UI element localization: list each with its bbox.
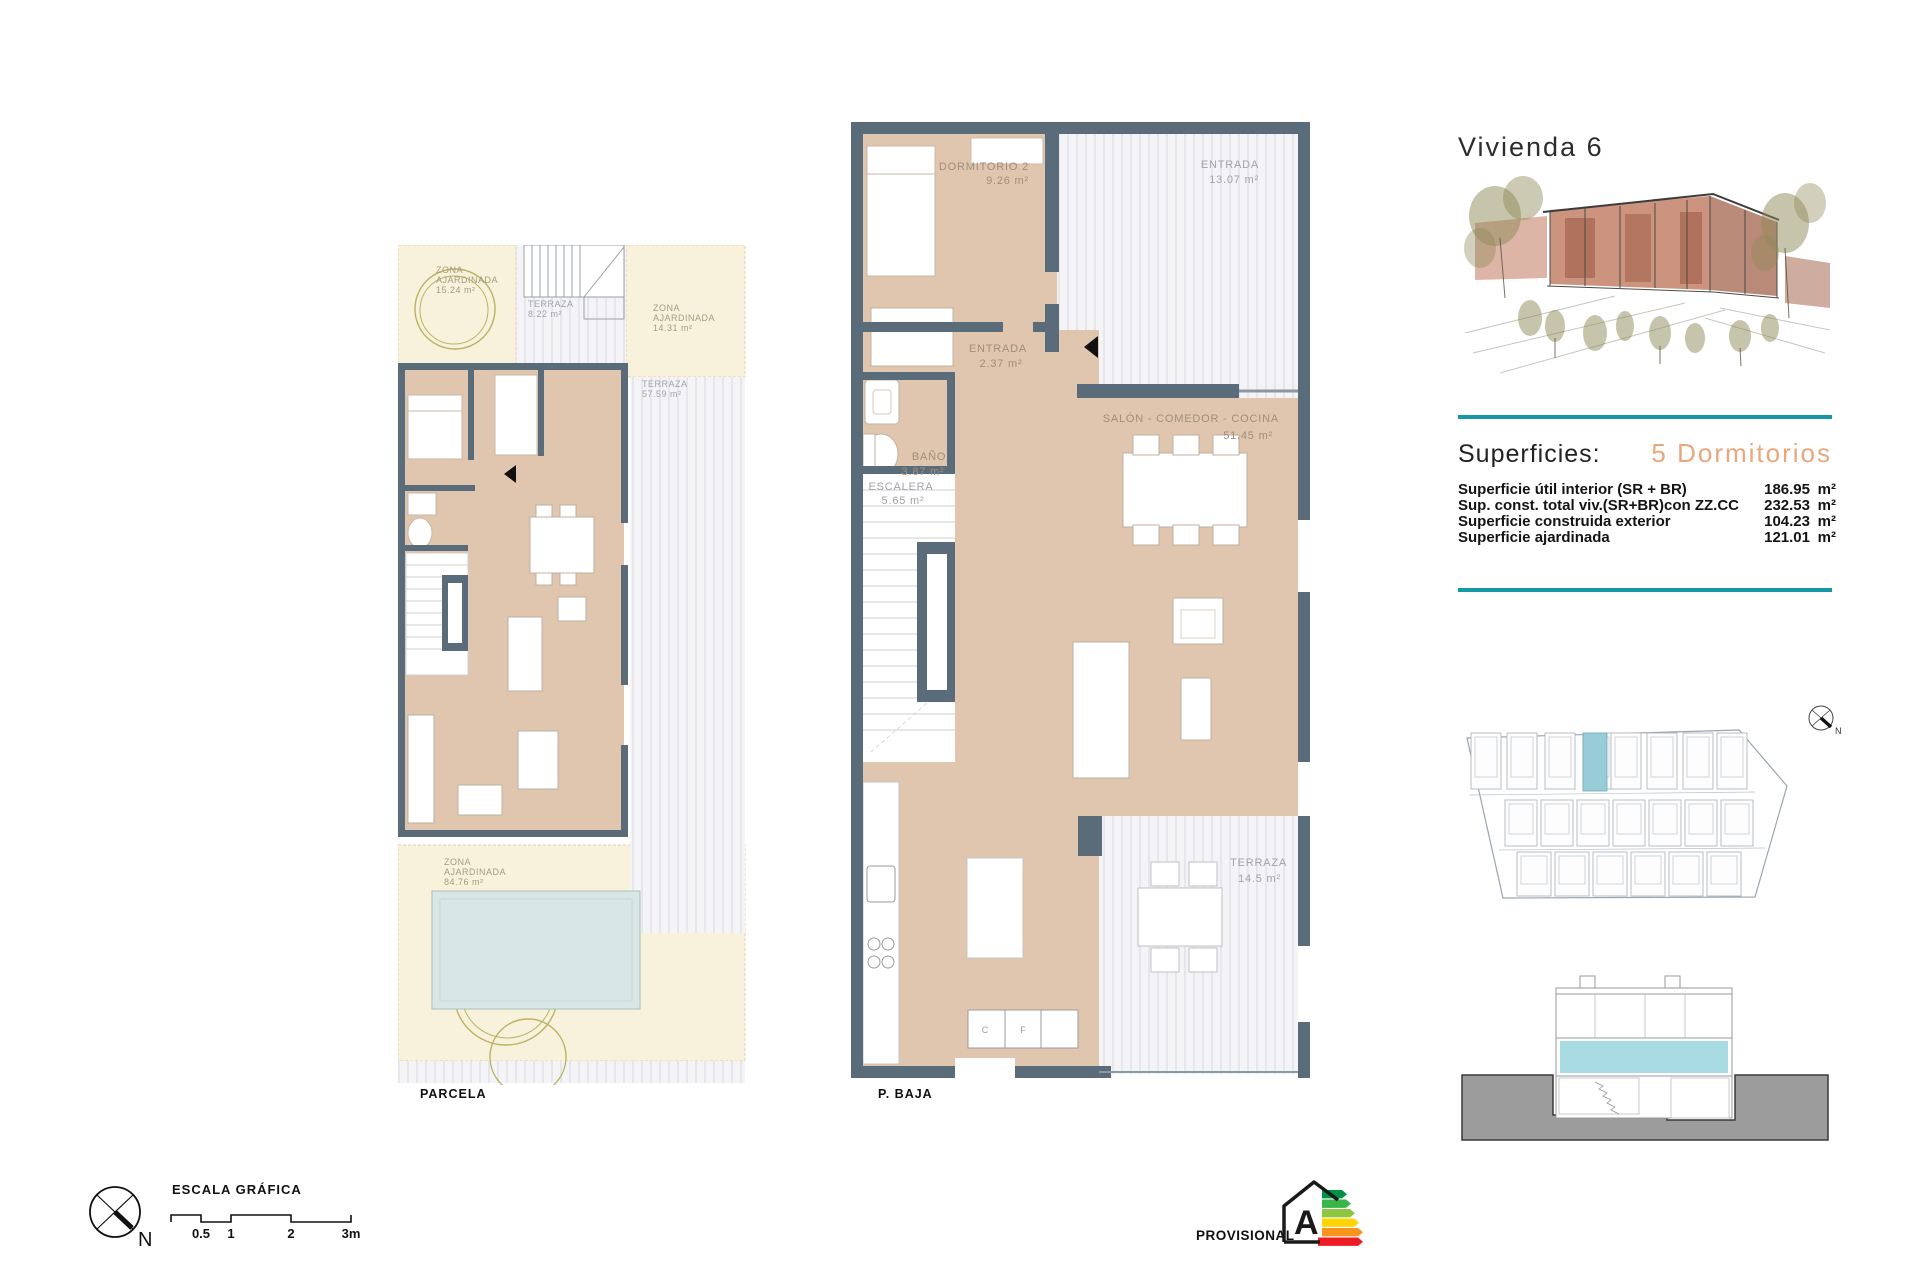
- svg-text:C: C: [982, 1025, 989, 1035]
- svg-text:TERRAZA: TERRAZA: [1230, 857, 1287, 869]
- scale-bar: 0.5 1 2 3m: [158, 1196, 378, 1246]
- plan-caption-pbaja: P. BAJA: [878, 1087, 933, 1101]
- svg-text:AJARDINADA: AJARDINADA: [436, 275, 498, 285]
- section-highlight-floor: [1560, 1041, 1728, 1073]
- row-value: 186.95: [1758, 482, 1810, 498]
- svg-text:TERRAZA: TERRAZA: [528, 299, 574, 309]
- svg-text:15.24 m²: 15.24 m²: [436, 285, 476, 295]
- site-units: [1471, 733, 1753, 896]
- svg-text:84.76 m²: 84.76 m²: [444, 877, 484, 887]
- svg-text:DORMITORIO 2: DORMITORIO 2: [939, 161, 1029, 173]
- row-value: 232.53: [1758, 498, 1810, 514]
- svg-text:ZONA: ZONA: [436, 265, 463, 275]
- svg-text:3.87 m²: 3.87 m²: [902, 466, 945, 478]
- svg-text:ESCALERA: ESCALERA: [868, 481, 933, 493]
- site-row-divider: [1469, 792, 1755, 795]
- staircase: [863, 474, 955, 762]
- svg-text:N: N: [1835, 726, 1842, 736]
- row-unit: m²: [1810, 498, 1836, 514]
- svg-text:3m: 3m: [342, 1226, 361, 1241]
- row-unit: m²: [1810, 482, 1836, 498]
- svg-text:AJARDINADA: AJARDINADA: [444, 867, 506, 877]
- row-label: Sup. const. total viv.(SR+BR)con ZZ.CC: [1458, 498, 1758, 514]
- svg-text:57.59 m²: 57.59 m²: [642, 389, 682, 399]
- site-row-divider: [1499, 848, 1765, 850]
- plan-caption-parcela: PARCELA: [420, 1087, 487, 1101]
- svg-text:8.22 m²: 8.22 m²: [528, 309, 562, 319]
- svg-text:AJARDINADA: AJARDINADA: [653, 313, 715, 323]
- svg-text:SALÓN - COMEDOR - COCINA: SALÓN - COMEDOR - COCINA: [1103, 412, 1279, 425]
- table-row: Superficie ajardinada 121.01 m²: [1458, 530, 1836, 546]
- table-row: Superficie útil interior (SR + BR) 186.9…: [1458, 482, 1836, 498]
- pool: [432, 891, 640, 1009]
- energy-bars: [1318, 1190, 1363, 1246]
- house-footprint: [398, 363, 628, 837]
- svg-text:ENTRADA: ENTRADA: [969, 343, 1027, 355]
- svg-text:14.5 m²: 14.5 m²: [1238, 873, 1281, 885]
- svg-text:51.45 m²: 51.45 m²: [1223, 430, 1273, 442]
- section-building: [1556, 976, 1732, 1118]
- superficies-subtitle: 5 Dormitorios: [1651, 438, 1832, 469]
- row-label: Superficie ajardinada: [1458, 530, 1758, 546]
- row-value: 121.01: [1758, 530, 1810, 546]
- row-value: 104.23: [1758, 514, 1810, 530]
- table-row: Sup. const. total viv.(SR+BR)con ZZ.CC 2…: [1458, 498, 1836, 514]
- energy-rating-icon: A: [1272, 1176, 1367, 1248]
- svg-text:1: 1: [227, 1226, 234, 1241]
- svg-text:5.65 m²: 5.65 m²: [882, 495, 925, 507]
- pbaja-plan: C F: [851, 122, 1310, 1078]
- accent-rule-top: [1458, 415, 1832, 419]
- superficies-heading-row: Superficies: 5 Dormitorios: [1458, 438, 1832, 469]
- north-arrow-icon: N: [85, 1178, 165, 1258]
- row-label: Superficie construida exterior: [1458, 514, 1758, 530]
- svg-text:ENTRADA: ENTRADA: [1201, 159, 1259, 171]
- svg-text:TERRAZA: TERRAZA: [642, 379, 688, 389]
- site-unit-highlight: [1583, 733, 1607, 791]
- accent-rule-bottom: [1458, 588, 1832, 592]
- svg-text:2: 2: [287, 1226, 294, 1241]
- closet: [871, 308, 953, 366]
- svg-text:F: F: [1020, 1025, 1026, 1035]
- site-location-plan: N: [1455, 700, 1855, 945]
- svg-text:14.31 m²: 14.31 m²: [653, 323, 693, 333]
- parcela-plan: ZONA AJARDINADA 15.24 m² TERRAZA 8.22 m²…: [398, 245, 747, 1085]
- site-north-arrow-icon: N: [1809, 706, 1842, 736]
- page-title: Vivienda 6: [1458, 132, 1604, 163]
- row-unit: m²: [1810, 514, 1836, 530]
- superficies-table: Superficie útil interior (SR + BR) 186.9…: [1458, 482, 1836, 546]
- svg-text:N: N: [138, 1229, 152, 1251]
- svg-text:ZONA: ZONA: [444, 857, 471, 867]
- svg-text:BAÑO: BAÑO: [912, 450, 946, 463]
- scale-title: ESCALA GRÁFICA: [172, 1182, 302, 1197]
- row-label: Superficie útil interior (SR + BR): [1458, 482, 1758, 498]
- section-drawing: [1455, 958, 1835, 1146]
- svg-text:9.26 m²: 9.26 m²: [986, 175, 1029, 187]
- table-row: Superficie construida exterior 104.23 m²: [1458, 514, 1836, 530]
- scale-tick-labels: 0.5 1 2 3m: [192, 1226, 360, 1241]
- plan-sheet: ZONA AJARDINADA 15.24 m² TERRAZA 8.22 m²…: [0, 0, 1920, 1280]
- svg-text:ZONA: ZONA: [653, 303, 680, 313]
- superficies-heading: Superficies:: [1458, 440, 1601, 469]
- house-watercolor-sketch: [1455, 168, 1840, 383]
- svg-text:13.07 m²: 13.07 m²: [1209, 174, 1259, 186]
- energy-rating-letter: A: [1294, 1204, 1319, 1242]
- svg-text:2.37 m²: 2.37 m²: [980, 358, 1023, 370]
- row-unit: m²: [1810, 530, 1836, 546]
- svg-text:0.5: 0.5: [192, 1226, 210, 1241]
